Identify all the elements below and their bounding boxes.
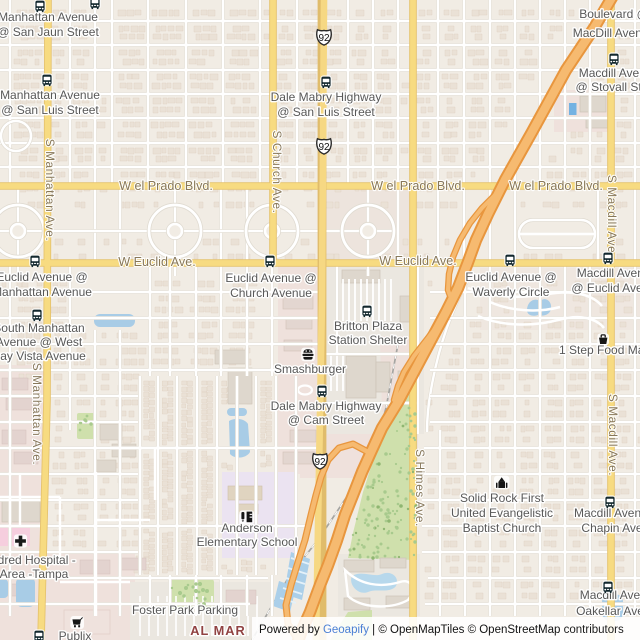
- svg-text:Foster Park Parking: Foster Park Parking: [132, 603, 238, 617]
- svg-text:@ Cam Street: @ Cam Street: [288, 413, 365, 427]
- svg-text:W Euclid Ave.: W Euclid Ave.: [379, 254, 456, 268]
- svg-text:Manhattan Avenue: Manhattan Avenue: [0, 285, 92, 299]
- svg-text:@ Stovall Street: @ Stovall Street: [576, 80, 640, 94]
- svg-text:Publix: Publix: [59, 629, 92, 640]
- svg-text:United Evangelistic: United Evangelistic: [451, 506, 553, 520]
- svg-text:W el Prado Blvd.: W el Prado Blvd.: [119, 179, 213, 193]
- svg-text:Solid Rock First: Solid Rock First: [460, 491, 545, 505]
- svg-text:S Macdill Ave.: S Macdill Ave.: [606, 394, 620, 476]
- svg-text:AL MAR: AL MAR: [190, 623, 246, 638]
- svg-text:Euclid Avenue @: Euclid Avenue @: [465, 270, 556, 284]
- svg-text:Baptist Church: Baptist Church: [463, 521, 542, 535]
- svg-text:Manhattan Avenue: Manhattan Avenue: [0, 88, 100, 102]
- svg-text:S Church Ave.: S Church Ave.: [270, 131, 284, 214]
- svg-text:Oakellar Avenue: Oakellar Avenue: [576, 604, 640, 618]
- svg-text:Avenue @ West: Avenue @ West: [0, 335, 83, 349]
- svg-text:Church Avenue: Church Avenue: [230, 286, 312, 300]
- svg-text:@ Euclid Avenue: @ Euclid Avenue: [571, 281, 640, 295]
- svg-text:W Euclid Ave.: W Euclid Ave.: [118, 255, 195, 269]
- svg-text:Smashburger: Smashburger: [274, 362, 346, 376]
- svg-text:Station Shelter: Station Shelter: [329, 333, 408, 347]
- svg-text:Dale Mabry Highway: Dale Mabry Highway: [271, 399, 382, 413]
- svg-text:S Manhattan Ave.: S Manhattan Ave.: [43, 139, 57, 242]
- svg-text:Powered by Geoapify | © OpenMa: Powered by Geoapify | © OpenMapTiles © O…: [259, 624, 624, 636]
- svg-text:Chapin Avenue: Chapin Avenue: [581, 521, 640, 535]
- svg-text:Euclid Avenue @: Euclid Avenue @: [225, 271, 316, 285]
- svg-text:Dale Mabry Highway: Dale Mabry Highway: [271, 90, 382, 104]
- svg-text:Boulevard @: Boulevard @: [579, 7, 640, 21]
- svg-text:South Manhattan: South Manhattan: [0, 321, 85, 335]
- svg-text:S Himes Ave.: S Himes Ave.: [413, 449, 427, 527]
- svg-text:92: 92: [318, 33, 330, 44]
- svg-text:Britton Plaza: Britton Plaza: [334, 319, 402, 333]
- svg-text:92: 92: [318, 142, 330, 153]
- svg-text:S Macdill Ave.: S Macdill Ave.: [605, 175, 619, 257]
- svg-text:Bay Vista Avenue: Bay Vista Avenue: [0, 349, 86, 363]
- svg-text:MacDill Avenue: MacDill Avenue: [573, 26, 640, 40]
- svg-text:Kindred Hospital -: Kindred Hospital -: [0, 553, 76, 567]
- svg-text:W el Prado Blvd.: W el Prado Blvd.: [509, 179, 603, 193]
- svg-text:Macdill Avenue: Macdill Avenue: [577, 266, 640, 280]
- svg-text:@ San Luis Street: @ San Luis Street: [277, 105, 375, 119]
- svg-text:Elementary School: Elementary School: [197, 535, 298, 549]
- svg-text:Area -Tampa: Area -Tampa: [0, 567, 69, 581]
- svg-text:Manhattan Avenue: Manhattan Avenue: [0, 10, 98, 24]
- svg-text:@ San Jaun Street: @ San Jaun Street: [0, 25, 99, 39]
- svg-text:Euclid Avenue @: Euclid Avenue @: [0, 270, 88, 284]
- svg-text:Macdill Avenue: Macdill Avenue: [579, 66, 640, 80]
- svg-text:S Manhattan Ave.: S Manhattan Ave.: [30, 363, 44, 466]
- svg-text:@ San Luis Street: @ San Luis Street: [1, 103, 99, 117]
- svg-text:W el Prado Blvd.: W el Prado Blvd.: [371, 179, 465, 193]
- svg-text:Waverly Circle: Waverly Circle: [473, 285, 550, 299]
- svg-text:92: 92: [314, 457, 326, 468]
